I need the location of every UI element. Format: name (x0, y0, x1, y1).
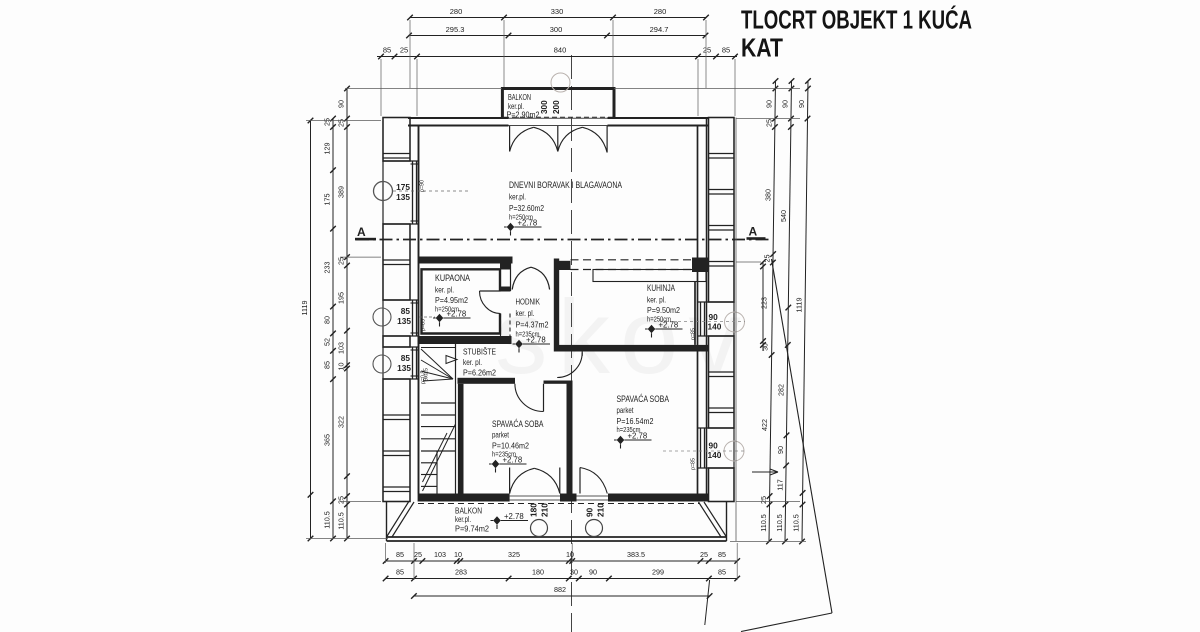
svg-text:25: 25 (337, 496, 346, 504)
svg-text:+2.78: +2.78 (526, 336, 546, 345)
svg-text:1119: 1119 (300, 301, 309, 316)
svg-text:p=90: p=90 (420, 180, 426, 192)
svg-text:25: 25 (414, 550, 422, 559)
svg-text:90: 90 (337, 100, 346, 108)
svg-text:80: 80 (323, 316, 332, 324)
svg-text:30: 30 (570, 568, 578, 577)
svg-text:90: 90 (781, 100, 790, 108)
svg-text:10: 10 (337, 363, 346, 371)
svg-text:DNEVNI BORAVAK I BLAGAVAONA: DNEVNI BORAVAK I BLAGAVAONA (509, 180, 622, 190)
svg-text:KUHINJA: KUHINJA (647, 283, 675, 293)
svg-text:383.5: 383.5 (627, 550, 645, 559)
svg-text:85: 85 (401, 306, 411, 316)
svg-text:+2.78: +2.78 (518, 219, 538, 228)
svg-text:+2.78: +2.78 (628, 432, 648, 441)
svg-text:85: 85 (383, 46, 391, 55)
svg-text:90: 90 (709, 441, 719, 451)
svg-text:85: 85 (396, 568, 404, 577)
svg-text:380: 380 (763, 189, 772, 201)
svg-text:135: 135 (397, 316, 411, 326)
svg-text:parket: parket (617, 406, 635, 415)
svg-text:110.5: 110.5 (759, 514, 768, 531)
svg-text:ker.pl.: ker.pl. (509, 193, 526, 202)
svg-text:85: 85 (323, 361, 332, 369)
svg-text:P=32.60m2: P=32.60m2 (509, 203, 544, 213)
svg-text:233: 233 (323, 262, 332, 274)
svg-text:25: 25 (764, 119, 773, 127)
svg-text:+2.78: +2.78 (447, 310, 467, 319)
svg-text:85: 85 (401, 353, 411, 363)
svg-text:25: 25 (400, 46, 408, 55)
svg-text:+2.78: +2.78 (504, 512, 524, 521)
svg-text:135: 135 (397, 363, 411, 373)
svg-text:90: 90 (589, 568, 597, 577)
svg-text:25: 25 (763, 255, 772, 263)
svg-text:140: 140 (708, 450, 722, 460)
svg-text:85: 85 (396, 550, 404, 559)
svg-text:P=4.95m2: P=4.95m2 (435, 295, 468, 305)
svg-text:110.5: 110.5 (792, 514, 801, 531)
svg-text:SPAVAĆA SOBA: SPAVAĆA SOBA (492, 419, 544, 429)
svg-text:A: A (357, 225, 366, 239)
svg-text:223: 223 (760, 297, 769, 309)
svg-text:ker. pl.: ker. pl. (516, 309, 535, 318)
svg-text:210: 210 (540, 503, 550, 517)
svg-text:85: 85 (722, 46, 730, 55)
svg-text:P=6.26m2: P=6.26m2 (463, 368, 496, 378)
svg-text:422: 422 (760, 419, 769, 431)
svg-text:10: 10 (454, 550, 462, 559)
svg-text:A: A (749, 225, 758, 239)
svg-text:175: 175 (396, 182, 410, 192)
svg-text:P=9.50m2: P=9.50m2 (647, 305, 680, 315)
svg-text:180: 180 (529, 503, 539, 517)
svg-text:BALKON: BALKON (455, 506, 482, 516)
svg-text:p=85: p=85 (691, 458, 697, 470)
svg-text:840: 840 (554, 46, 567, 55)
svg-text:KUPAONA: KUPAONA (435, 273, 470, 283)
svg-text:+2.78: +2.78 (659, 321, 679, 330)
svg-text:103: 103 (434, 550, 446, 559)
svg-text:10: 10 (566, 550, 574, 559)
svg-text:300: 300 (540, 100, 549, 114)
svg-text:parket: parket (492, 431, 510, 440)
svg-text:330: 330 (551, 7, 564, 16)
svg-text:85: 85 (718, 568, 726, 577)
svg-text:BALKON: BALKON (508, 93, 531, 102)
svg-text:180: 180 (532, 568, 544, 577)
svg-text:175: 175 (323, 194, 332, 206)
svg-text:25: 25 (323, 118, 332, 126)
svg-text:110.5: 110.5 (323, 511, 332, 528)
svg-text:110.5: 110.5 (337, 512, 346, 529)
svg-text:325: 325 (508, 550, 520, 559)
svg-text:30: 30 (763, 343, 770, 351)
svg-text:299: 299 (652, 568, 664, 577)
svg-text:SPAVAĆA SOBA: SPAVAĆA SOBA (617, 394, 670, 404)
svg-text:283: 283 (455, 568, 467, 577)
svg-text:300: 300 (550, 25, 563, 34)
svg-text:540: 540 (779, 210, 788, 222)
svg-text:STUBIŠTE: STUBIŠTE (463, 347, 496, 357)
svg-text:KAT: KAT (741, 33, 783, 63)
svg-text:1119: 1119 (795, 298, 804, 313)
svg-text:+2.78: +2.78 (503, 456, 523, 465)
svg-text:295.3: 295.3 (446, 25, 465, 34)
svg-text:90: 90 (585, 507, 595, 517)
svg-text:110.5: 110.5 (775, 514, 784, 531)
svg-text:90: 90 (776, 446, 785, 454)
svg-text:P=4.37m2: P=4.37m2 (516, 320, 549, 330)
svg-text:25: 25 (759, 496, 768, 504)
svg-text:25: 25 (703, 46, 711, 55)
svg-text:90: 90 (765, 100, 774, 108)
svg-text:HODNIK: HODNIK (516, 297, 541, 307)
svg-text:85: 85 (718, 550, 726, 559)
svg-text:282: 282 (777, 384, 786, 396)
svg-text:TLOCRT OBJEKT 1 KUĆA: TLOCRT OBJEKT 1 KUĆA (741, 5, 972, 35)
svg-text:25: 25 (700, 550, 708, 559)
svg-text:103: 103 (337, 342, 346, 354)
svg-text:9x0.5: 9x0.5 (424, 368, 430, 381)
svg-text:294.7: 294.7 (650, 25, 669, 34)
svg-text:ker. pl.: ker. pl. (463, 358, 482, 367)
svg-text:90: 90 (797, 100, 806, 108)
svg-text:129: 129 (323, 143, 332, 155)
svg-text:210: 210 (596, 503, 606, 517)
svg-text:280: 280 (450, 7, 463, 16)
svg-text:90: 90 (709, 312, 719, 322)
svg-text:52: 52 (323, 338, 332, 346)
svg-text:135: 135 (396, 192, 410, 202)
svg-text:ker. pl.: ker. pl. (435, 286, 454, 295)
svg-text:ker. pl.: ker. pl. (647, 296, 666, 305)
svg-text:117: 117 (775, 479, 784, 490)
svg-text:389: 389 (337, 186, 346, 198)
svg-text:200: 200 (552, 100, 561, 114)
svg-text:140: 140 (708, 322, 722, 332)
svg-text:195: 195 (337, 292, 346, 304)
svg-text:P=9.74m2: P=9.74m2 (455, 524, 489, 534)
svg-text:322: 322 (337, 416, 346, 428)
svg-text:25: 25 (337, 257, 346, 265)
svg-text:365: 365 (323, 434, 332, 446)
svg-text:882: 882 (554, 585, 566, 594)
svg-text:280: 280 (654, 7, 667, 16)
